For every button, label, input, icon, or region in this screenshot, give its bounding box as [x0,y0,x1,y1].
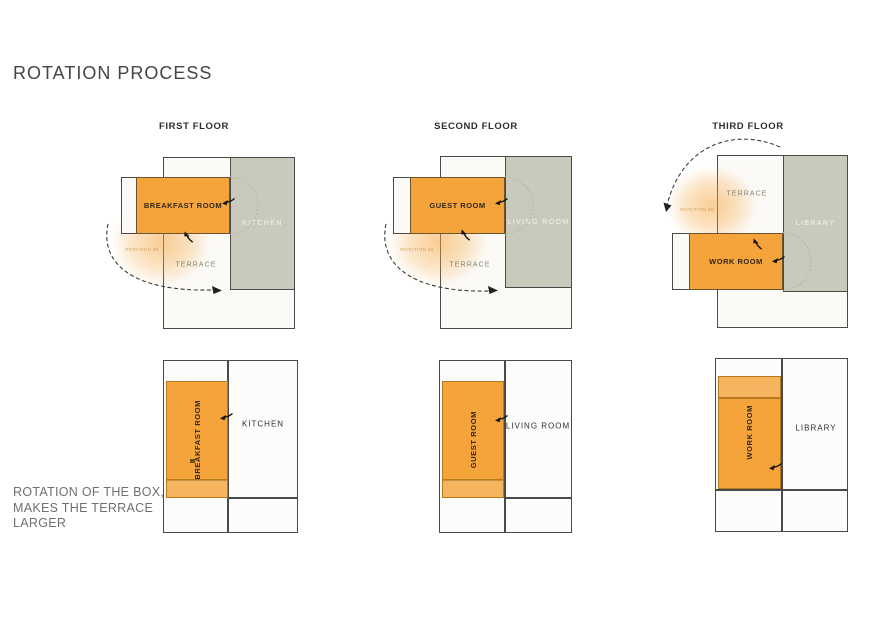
floor1-plan-bar: BREAKFAST ROOM [166,381,228,498]
header-first-floor: FIRST FLOOR [159,121,229,132]
floor2-bar-light-strip [443,480,503,497]
floor3-fixed-room-label: LIBRARY [796,220,836,227]
floor2-terrace-label: TERRACE [449,262,490,269]
floor2-plan-hline [505,497,572,499]
floor1-fixed-room: KITCHEN [230,157,295,290]
floor3-bar-divider [719,397,780,399]
floor2-fixed-room-label: LIVING ROOM [507,219,569,226]
page-title: ROTATION PROCESS [13,63,212,84]
floor1-terrace-label: TERRACE [175,262,216,269]
header-third-floor: THIRD FLOOR [712,121,784,132]
floor3-fixed-room: LIBRARY [783,155,848,292]
floor3-terrace-label: TERRACE [726,191,767,198]
floor1-plan-hline [228,497,298,499]
header-second-floor: SECOND FLOOR [434,121,518,132]
floor2-plan-divider [504,360,506,533]
floor2-rotation-note: ROTATION 90 [400,248,433,253]
floor1-plan-room-label: BREAKFAST ROOM [193,400,202,480]
slide-canvas: ROTATION PROCESS ROTATION OF THE BOX, MA… [0,0,880,627]
floor1-bar-end-box [121,177,137,234]
floor3-plan-bar: WORK ROOM [718,376,781,489]
floor2-rotated-room-label: GUEST ROOM [429,201,485,210]
floor2-plan-bar: GUEST ROOM [442,381,504,498]
floor3-plan-fixed-label: LIBRARY [795,424,836,433]
floor1-rotated-room-label: BREAKFAST ROOM [144,201,222,210]
floor3-bar-end-box [672,233,690,290]
caption-text: ROTATION OF THE BOX, MAKES THE TERRACE L… [13,485,164,532]
floor3-plan-room-label: WORK ROOM [745,405,754,460]
floor2-bar-end-box [393,177,411,234]
floor3-rotated-room-label: WORK ROOM [709,257,763,266]
floor1-plan-fixed-label: KITCHEN [242,420,284,429]
floor3-bar-light-strip [719,377,780,397]
floor3-plan-divider [781,358,783,532]
floor1-rotated-room: BREAKFAST ROOM [136,177,230,234]
floor3-rotation-note: ROTATION 90 [680,208,713,213]
floor1-bar-light-strip [167,480,227,497]
floor2-fixed-room: LIVING ROOM [505,156,572,288]
floor1-rotation-note: ROTATION 90 [125,248,158,253]
floor3-plan-hline [715,489,848,491]
floor1-fixed-room-label: KITCHEN [242,220,283,227]
floor2-rotated-room: GUEST ROOM [410,177,505,234]
floor2-plan-room-label: GUEST ROOM [469,411,478,468]
floor2-plan-fixed-label: LIVING ROOM [506,422,570,431]
floor3-rotated-room: WORK ROOM [689,233,783,290]
